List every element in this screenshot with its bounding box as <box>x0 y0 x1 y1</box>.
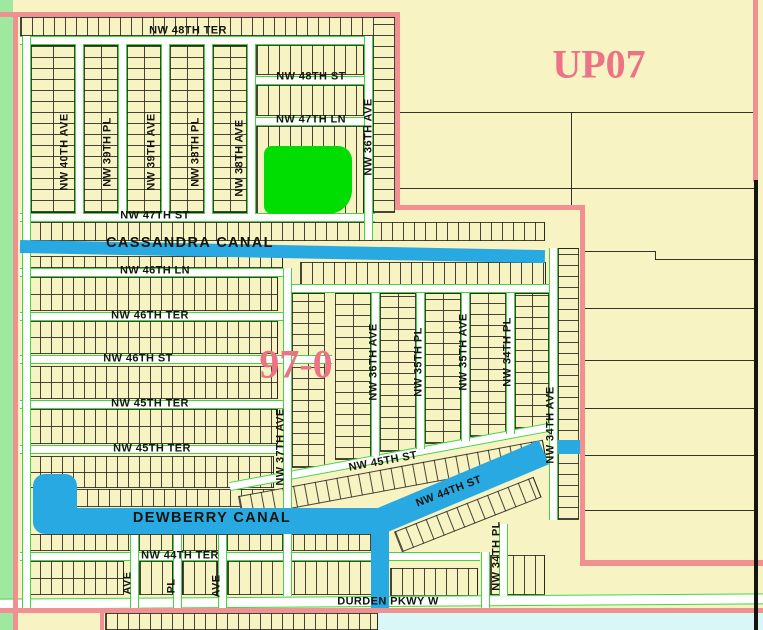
street-label-nw-36th-ave-south: NW 36TH AVE <box>369 323 380 400</box>
street-nw-44th-ter <box>20 552 480 561</box>
parcel-block <box>28 277 278 311</box>
boundary-line <box>395 12 400 210</box>
street-label-nw-36th-ave-north: NW 36TH AVE <box>364 98 375 175</box>
greenway-strip <box>0 0 13 630</box>
street-label-nw-47th-ln: NW 47TH LN <box>276 115 346 126</box>
street-label-nw-34th-pl: NW 34TH PL <box>503 317 514 386</box>
boundary-line <box>0 12 398 17</box>
street-label-nw-34th-ave: NW 34TH AVE <box>546 386 557 463</box>
boundary-line <box>580 560 763 566</box>
boundary-line <box>13 12 18 630</box>
street-nw-38th-pl <box>204 44 213 214</box>
street-label-partial-pl: PL <box>167 579 178 594</box>
street-label-nw-34th-pl-south: NW 34TH PL <box>492 521 503 590</box>
parcel-line <box>585 455 754 456</box>
parcel-block <box>373 17 395 213</box>
street-nw-47th-st <box>20 213 375 222</box>
street-label-nw-35th-pl: NW 35TH PL <box>414 327 425 396</box>
street-label-nw-39th-ave: NW 39TH AVE <box>147 113 158 190</box>
street-label-nw-46th-ter: NW 46TH TER <box>111 311 189 322</box>
parcel-line <box>585 360 754 361</box>
parcel-block <box>558 248 579 520</box>
street-label-nw-46th-st: NW 46TH ST <box>103 354 172 365</box>
street-label-partial-ave-2: AVE <box>212 574 223 597</box>
parcel-line <box>585 308 754 309</box>
parcel-block <box>256 85 364 116</box>
parcel-line <box>585 408 754 409</box>
boundary-line <box>580 205 585 565</box>
street-vertical <box>22 36 31 608</box>
parcel-line <box>398 188 754 189</box>
street-label-nw-35th-ave: NW 35TH AVE <box>459 313 470 390</box>
map-canvas[interactable]: UP07 97-0 CASSANDRA CANAL DEWBERRY CANAL… <box>0 0 763 630</box>
flood-zone-area <box>378 613 763 630</box>
zone-label-up07: UP07 <box>552 41 645 88</box>
street-label-nw-45th-ter-2: NW 45TH TER <box>113 444 191 455</box>
parcel-line <box>585 510 754 511</box>
parcel-block <box>300 262 546 286</box>
street-vertical <box>481 552 490 608</box>
street-nw-39th-pl <box>118 44 127 214</box>
section-border-line <box>754 180 758 630</box>
parcel-block <box>28 561 124 595</box>
zone-label-97-0: 97-0 <box>259 341 332 388</box>
street-label-nw-44th-ter: NW 44TH TER <box>141 551 219 562</box>
parcel-block <box>335 293 371 460</box>
canal-label-dewberry: DEWBERRY CANAL <box>133 511 291 526</box>
parcel-block <box>28 366 278 399</box>
street-label-nw-39th-pl: NW 39TH PL <box>103 117 114 186</box>
parcel-block <box>425 293 461 444</box>
parcel-block <box>28 321 278 354</box>
street-label-nw-40th-ave: NW 40TH AVE <box>60 113 71 190</box>
street-label-partial-ave-1: AVE <box>123 571 134 594</box>
parcel-line <box>585 251 655 252</box>
parcel-line <box>655 259 754 260</box>
street-label-nw-38th-ave: NW 38TH AVE <box>235 119 246 196</box>
boundary-line <box>395 205 585 210</box>
street-label-nw-48th-st: NW 48TH ST <box>276 72 345 83</box>
street-nw-38th-ave <box>247 44 256 214</box>
street-nw-46th-ln-east <box>292 284 552 293</box>
boundary-line <box>0 608 763 613</box>
parcel-line <box>398 112 754 113</box>
boundary-line <box>753 0 758 182</box>
parcel-line <box>571 112 572 208</box>
street-label-nw-38th-pl: NW 38TH PL <box>191 117 202 186</box>
street-vertical <box>173 535 182 608</box>
street-label-nw-46th-ln: NW 46TH LN <box>120 266 190 277</box>
boundary-line <box>100 611 104 630</box>
canal-label-cassandra: CASSANDRA CANAL <box>106 236 274 251</box>
parcel-block <box>28 409 278 444</box>
street-label-durden-pkwy-w: DURDEN PKWY W <box>337 597 439 608</box>
street-nw-34th-ave <box>549 248 558 520</box>
highlighted-parcel[interactable] <box>264 146 352 214</box>
street-label-nw-47th-st: NW 47TH ST <box>120 211 189 222</box>
street-nw-39th-ave <box>161 44 170 214</box>
parcel-block <box>227 561 375 595</box>
street-nw-40th-ave <box>75 44 84 214</box>
street-label-nw-48th-ter: NW 48TH TER <box>149 26 227 37</box>
street-label-nw-37th-ave: NW 37TH AVE <box>276 408 287 485</box>
parcel-block <box>28 534 373 551</box>
parcel-block <box>390 568 478 596</box>
dewberry-canal-water <box>558 440 580 454</box>
parcel-block <box>105 613 378 630</box>
street-nw-48th-ter <box>20 36 370 45</box>
parcel-block <box>380 293 416 452</box>
street-label-nw-45th-ter-1: NW 45TH TER <box>111 399 189 410</box>
